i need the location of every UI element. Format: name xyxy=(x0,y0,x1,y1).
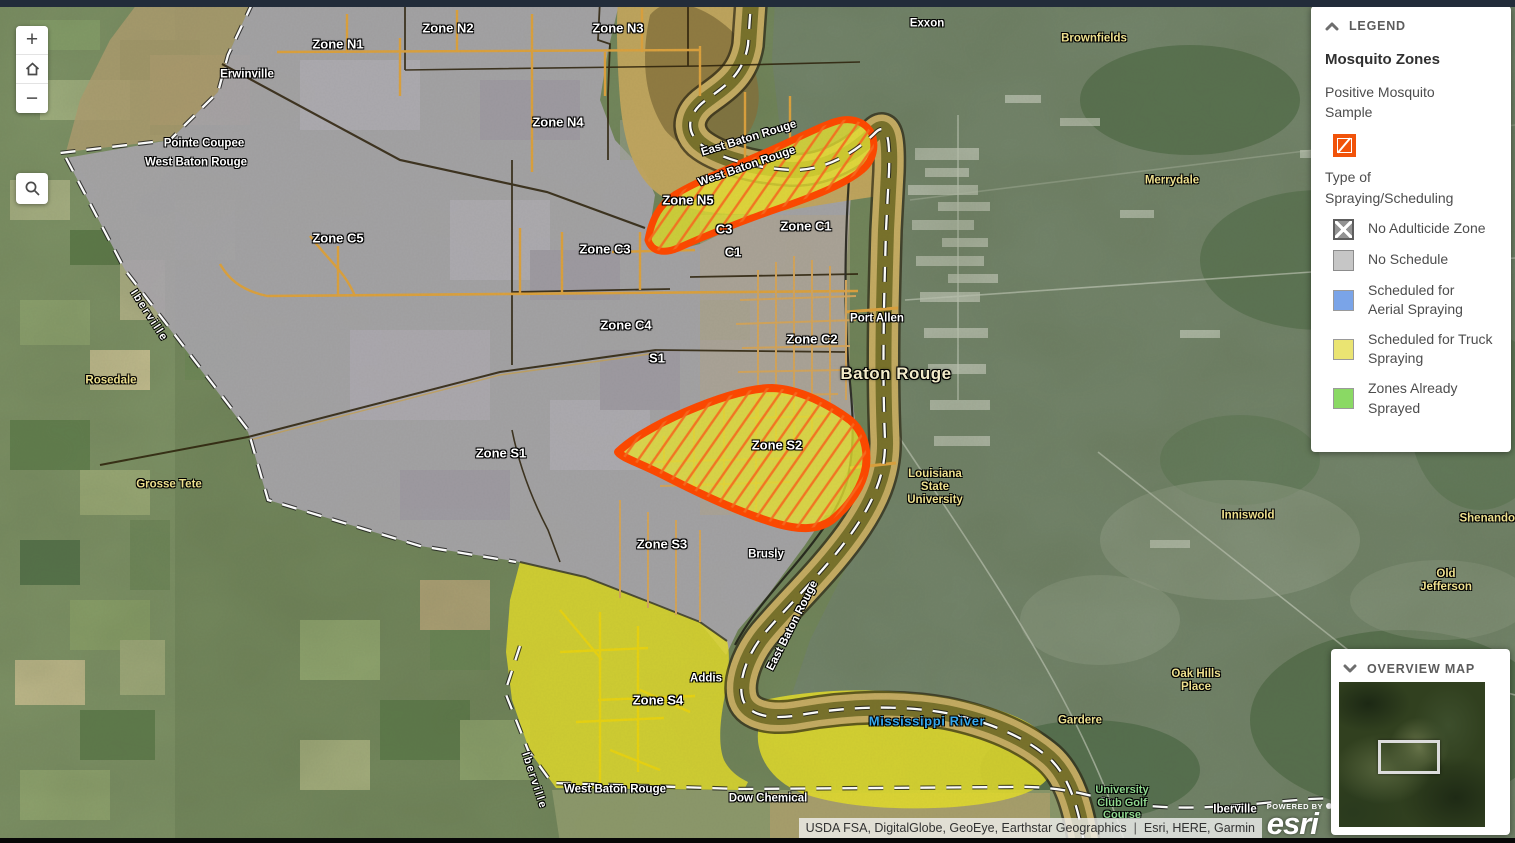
legend-item-label: No Adulticide Zone xyxy=(1368,219,1493,239)
map-navigation-controls: + − xyxy=(16,26,48,113)
legend-item: Zones Already Sprayed xyxy=(1333,379,1497,418)
legend-layer-title: Mosquito Zones xyxy=(1325,51,1497,68)
legend-item: Scheduled for Aerial Spraying xyxy=(1333,281,1497,320)
legend-item: No Schedule xyxy=(1333,250,1497,271)
legend-swatch-solid xyxy=(1333,250,1354,271)
attribution-vendors: Esri, HERE, Garmin xyxy=(1144,821,1255,835)
zoom-in-button[interactable]: + xyxy=(16,26,48,55)
zoom-out-button[interactable]: − xyxy=(16,84,48,113)
positive-sample-swatch xyxy=(1333,134,1356,157)
legend-swatch-solid xyxy=(1333,388,1354,409)
legend-items: No Adulticide ZoneNo ScheduleScheduled f… xyxy=(1325,219,1497,419)
chevron-up-icon xyxy=(1325,21,1339,31)
browser-top-bar xyxy=(0,0,1515,7)
legend-swatch-crosshatch xyxy=(1333,219,1354,240)
legend-body: Mosquito Zones Positive Mosquito Sample … xyxy=(1311,51,1511,418)
home-icon xyxy=(24,61,41,77)
attribution-separator: | xyxy=(1134,821,1137,835)
bottom-bar xyxy=(0,838,1515,843)
overview-header[interactable]: OVERVIEW MAP xyxy=(1339,653,1502,682)
overview-extent-rectangle[interactable] xyxy=(1378,740,1440,774)
legend-item: Scheduled for Truck Spraying xyxy=(1333,330,1497,369)
overview-map-panel: OVERVIEW MAP xyxy=(1331,649,1510,835)
legend-title: LEGEND xyxy=(1349,19,1406,33)
overview-title: OVERVIEW MAP xyxy=(1367,662,1475,676)
overview-map-thumbnail[interactable] xyxy=(1339,682,1485,827)
legend-panel: LEGEND Mosquito Zones Positive Mosquito … xyxy=(1311,6,1511,452)
legend-swatch-solid xyxy=(1333,339,1354,360)
legend-item-label: Scheduled for Aerial Spraying xyxy=(1368,281,1493,320)
legend-item: No Adulticide Zone xyxy=(1333,219,1497,240)
grain-overlay xyxy=(0,0,1515,843)
home-button[interactable] xyxy=(16,55,48,84)
legend-item-label: Scheduled for Truck Spraying xyxy=(1368,330,1493,369)
legend-swatch-solid xyxy=(1333,290,1354,311)
esri-wordmark: esri xyxy=(1267,808,1332,839)
search-button[interactable] xyxy=(16,173,48,204)
magnifier-icon xyxy=(24,180,41,197)
chevron-down-icon xyxy=(1343,664,1357,674)
legend-sample-label: Positive Mosquito Sample xyxy=(1325,82,1470,123)
map-attribution: USDA FSA, DigitalGlobe, GeoEye, Earthsta… xyxy=(799,818,1262,838)
legend-section-title: Type of Spraying/Scheduling xyxy=(1325,167,1485,209)
legend-item-label: No Schedule xyxy=(1368,250,1493,270)
esri-logo: POWERED BY esri xyxy=(1267,803,1332,840)
attribution-sources: USDA FSA, DigitalGlobe, GeoEye, Earthsta… xyxy=(806,821,1127,835)
legend-header[interactable]: LEGEND xyxy=(1311,6,1511,41)
map-canvas[interactable] xyxy=(0,0,1515,843)
map-stage[interactable] xyxy=(0,0,1515,843)
legend-item-label: Zones Already Sprayed xyxy=(1368,379,1493,418)
